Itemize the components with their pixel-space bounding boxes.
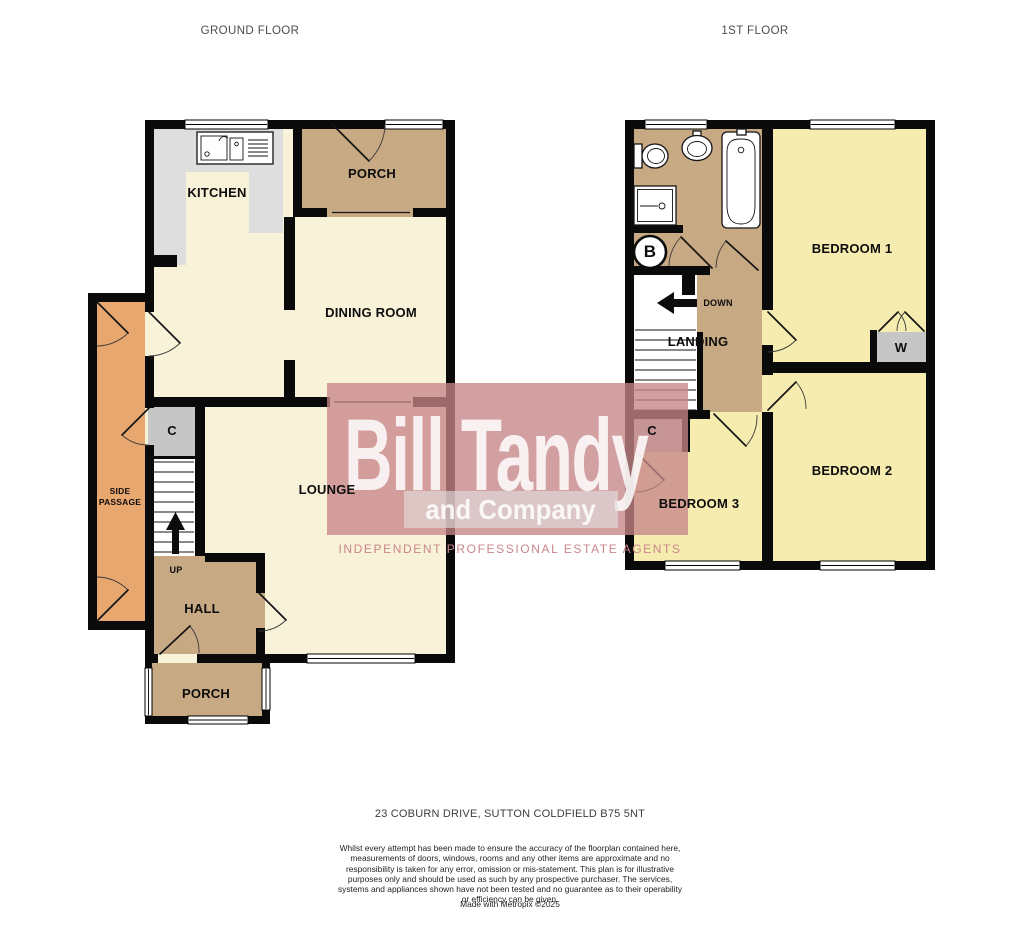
watermark-tagline: INDEPENDENT PROFESSIONAL ESTATE AGENTS (300, 542, 720, 556)
label-cupboard-ground: C (152, 423, 192, 438)
shower-icon (634, 186, 676, 225)
first-floor-title: 1ST FLOOR (655, 25, 855, 37)
label-wardrobe: W (881, 340, 921, 355)
room-label-kitchen: KITCHEN (157, 185, 277, 200)
room-label-bedroom3: BEDROOM 3 (639, 496, 759, 511)
room-label-landing: LANDING (648, 334, 748, 349)
label-stairs-up: UP (156, 565, 196, 575)
kitchen-sink-icon (197, 132, 273, 164)
room-label-hall: HALL (162, 601, 242, 616)
room-label-side-passage: SIDE PASSAGE (95, 486, 145, 508)
credit-text: Made with Metropix ©2025 (334, 899, 686, 909)
room-label-bedroom1: BEDROOM 1 (792, 241, 912, 256)
disclaimer-text: Whilst every attempt has been made to en… (334, 843, 686, 905)
room-label-dining-room: DINING ROOM (301, 305, 441, 320)
room-label-bedroom2: BEDROOM 2 (792, 463, 912, 478)
label-boiler: B (635, 242, 665, 262)
watermark-sub-band: and Company (404, 491, 618, 528)
bath-icon (722, 129, 760, 228)
room-label-porch-bottom: PORCH (146, 686, 266, 701)
room-label-porch-top: PORCH (312, 166, 432, 181)
toilet-icon (634, 144, 668, 168)
floorplan-page: GROUND FLOOR 1ST FLOOR (0, 0, 1020, 937)
watermark-sub-text: and Company (426, 496, 596, 524)
label-cupboard-first: C (632, 423, 672, 438)
room-label-lounge: LOUNGE (267, 482, 387, 497)
ground-floor-title: GROUND FLOOR (150, 25, 350, 37)
label-stairs-down: DOWN (696, 298, 740, 308)
property-address: 23 COBURN DRIVE, SUTTON COLDFIELD B75 5N… (310, 808, 710, 820)
